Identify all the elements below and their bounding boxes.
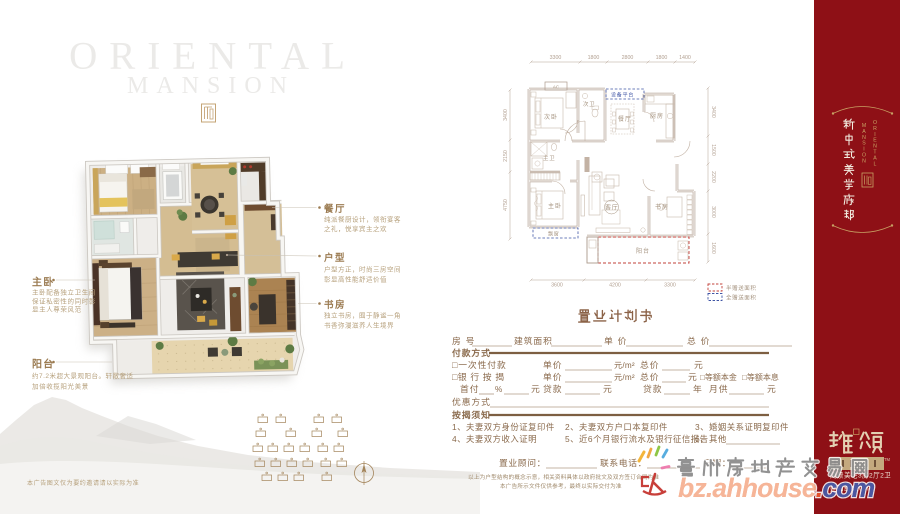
svg-text:总价: 总价 xyxy=(640,359,659,370)
svg-text:纯派餐厨设计，领衔宴客: 纯派餐厨设计，领衔宴客 xyxy=(324,215,401,224)
svg-text:独立书房，囿于静谧一角: 独立书房，囿于静谧一角 xyxy=(324,311,401,320)
svg-text:N: N xyxy=(862,158,866,164)
svg-text:TM: TM xyxy=(884,457,891,462)
svg-text:半赠送面积: 半赠送面积 xyxy=(726,284,757,292)
svg-text:次卧: 次卧 xyxy=(544,113,558,121)
svg-text:%: % xyxy=(495,385,502,394)
svg-text:□等额本息: □等额本息 xyxy=(742,372,779,382)
svg-text:AC: AC xyxy=(553,85,560,90)
svg-text:3000: 3000 xyxy=(710,206,716,218)
svg-text:元: 元 xyxy=(767,384,776,394)
svg-text:彰显高性能舒适价值: 彰显高性能舒适价值 xyxy=(324,275,387,284)
svg-text:3400: 3400 xyxy=(503,109,509,121)
svg-text:3600: 3600 xyxy=(551,283,563,289)
svg-text:3、婚姻关系证明复印件: 3、婚姻关系证明复印件 xyxy=(695,422,789,432)
svg-text:主卫: 主卫 xyxy=(543,154,556,162)
svg-text:1400: 1400 xyxy=(679,55,691,61)
svg-text:1、夫妻双方身份证复印件: 1、夫妻双方身份证复印件 xyxy=(452,422,555,432)
svg-text:客厅: 客厅 xyxy=(605,204,619,212)
svg-text:全赠送面积: 全赠送面积 xyxy=(726,294,757,302)
svg-text:设备平台: 设备平台 xyxy=(611,92,634,99)
svg-text:以上为户型结构的概念示意，相关资料具体以政府批文及双方签订合: 以上为户型结构的概念示意，相关资料具体以政府批文及双方签订合同为准 xyxy=(468,473,659,481)
svg-text:ORIENTAL: ORIENTAL xyxy=(69,35,357,78)
svg-text:付款方式: 付款方式 xyxy=(452,347,491,358)
svg-text:元/m²: 元/m² xyxy=(614,361,635,370)
svg-text:加倍收揽阳光美景: 加倍收揽阳光美景 xyxy=(32,382,89,391)
svg-text:L: L xyxy=(874,161,877,167)
svg-text:元: 元 xyxy=(603,384,612,394)
svg-text:月供: 月供 xyxy=(709,383,728,394)
svg-text:1600: 1600 xyxy=(710,242,716,254)
svg-text:bz.ahhouse.com: bz.ahhouse.com xyxy=(678,473,875,503)
svg-text:2、夫妻双方户口本复印件: 2、夫妻双方户口本复印件 xyxy=(565,422,668,432)
svg-text:单价: 单价 xyxy=(543,359,562,370)
svg-text:MANSION: MANSION xyxy=(127,73,295,99)
svg-text:贷款: 贷款 xyxy=(543,383,562,394)
svg-text:4750: 4750 xyxy=(503,199,509,211)
svg-text:餐厅: 餐厅 xyxy=(618,115,632,123)
svg-text:4、夫妻双方收入证明: 4、夫妻双方收入证明 xyxy=(452,434,537,444)
svg-text:总 价: 总 价 xyxy=(687,335,711,346)
svg-text:单价: 单价 xyxy=(543,371,562,382)
svg-text:置业顾问：: 置业顾问： xyxy=(499,457,546,468)
svg-text:贷款: 贷款 xyxy=(643,383,662,394)
svg-text:4200: 4200 xyxy=(609,283,621,289)
svg-text:优惠方式: 优惠方式 xyxy=(452,396,491,407)
svg-text:1800: 1800 xyxy=(588,55,600,61)
svg-text:首付: 首付 xyxy=(460,383,479,394)
svg-text:飘窗: 飘窗 xyxy=(548,231,560,238)
svg-text:建筑面积: 建筑面积 xyxy=(514,335,553,346)
svg-text:之礼，悦享宾主之欢: 之礼，悦享宾主之欢 xyxy=(324,224,387,233)
svg-text:单 价: 单 价 xyxy=(604,335,628,346)
svg-text:主卧配备独立卫生间: 主卧配备独立卫生间 xyxy=(32,288,96,297)
svg-text:显主人尊荣风范: 显主人尊荣风范 xyxy=(32,305,82,314)
svg-text:书房: 书房 xyxy=(324,299,346,311)
svg-text:主卧: 主卧 xyxy=(32,276,54,289)
svg-text:2800: 2800 xyxy=(622,55,634,61)
svg-text:户型: 户型 xyxy=(323,252,346,264)
svg-text:2150: 2150 xyxy=(503,150,509,162)
svg-text:厨房: 厨房 xyxy=(650,112,664,120)
svg-text:主卧: 主卧 xyxy=(548,202,562,210)
svg-text:1800: 1800 xyxy=(656,55,668,61)
svg-text:5、近6个月银行流水及银行征信报告: 5、近6个月银行流水及银行征信报告 xyxy=(565,434,708,444)
svg-text:□等额本金: □等额本金 xyxy=(700,372,737,382)
svg-text:次卫: 次卫 xyxy=(583,100,596,108)
svg-text:6、其他: 6、其他 xyxy=(695,434,727,444)
svg-text:本广告所示文件仅供参考，最终以实际交付为准: 本广告所示文件仅供参考，最终以实际交付为准 xyxy=(500,482,622,490)
svg-text:□银 行 按 揭: □银 行 按 揭 xyxy=(452,371,505,382)
svg-text:餐厅: 餐厅 xyxy=(323,203,346,215)
svg-text:阳台: 阳台 xyxy=(32,358,54,371)
svg-text:元: 元 xyxy=(694,360,703,370)
svg-text:保证私密性的同时彰: 保证私密性的同时彰 xyxy=(32,297,96,306)
svg-text:□一次性付款: □一次性付款 xyxy=(452,359,507,370)
svg-text:阳台: 阳台 xyxy=(636,247,650,255)
svg-text:按揭须知: 按揭须知 xyxy=(452,409,491,420)
svg-text:户型方正，时尚三房空间: 户型方正，时尚三房空间 xyxy=(324,265,401,274)
svg-text:书香弥漫滋养人生境界: 书香弥漫滋养人生境界 xyxy=(324,321,394,330)
svg-text:元: 元 xyxy=(531,384,540,394)
svg-text:元: 元 xyxy=(688,372,697,382)
svg-text:约7.2米超大景观阳台。轩敞奢适: 约7.2米超大景观阳台。轩敞奢适 xyxy=(32,371,134,380)
svg-text:3300: 3300 xyxy=(664,283,676,289)
svg-text:1500: 1500 xyxy=(710,144,716,156)
svg-text:书房: 书房 xyxy=(655,203,669,211)
svg-text:房 号: 房 号 xyxy=(452,335,476,346)
svg-text:元/m²: 元/m² xyxy=(614,373,635,382)
svg-text:2200: 2200 xyxy=(710,171,716,183)
svg-text:3400: 3400 xyxy=(710,106,716,118)
svg-text:3300: 3300 xyxy=(550,55,562,61)
svg-text:年: 年 xyxy=(693,383,702,394)
svg-text:总价: 总价 xyxy=(640,371,659,382)
svg-text:本广告图文仅为要约邀请请以实际为准: 本广告图文仅为要约邀请请以实际为准 xyxy=(27,479,139,487)
